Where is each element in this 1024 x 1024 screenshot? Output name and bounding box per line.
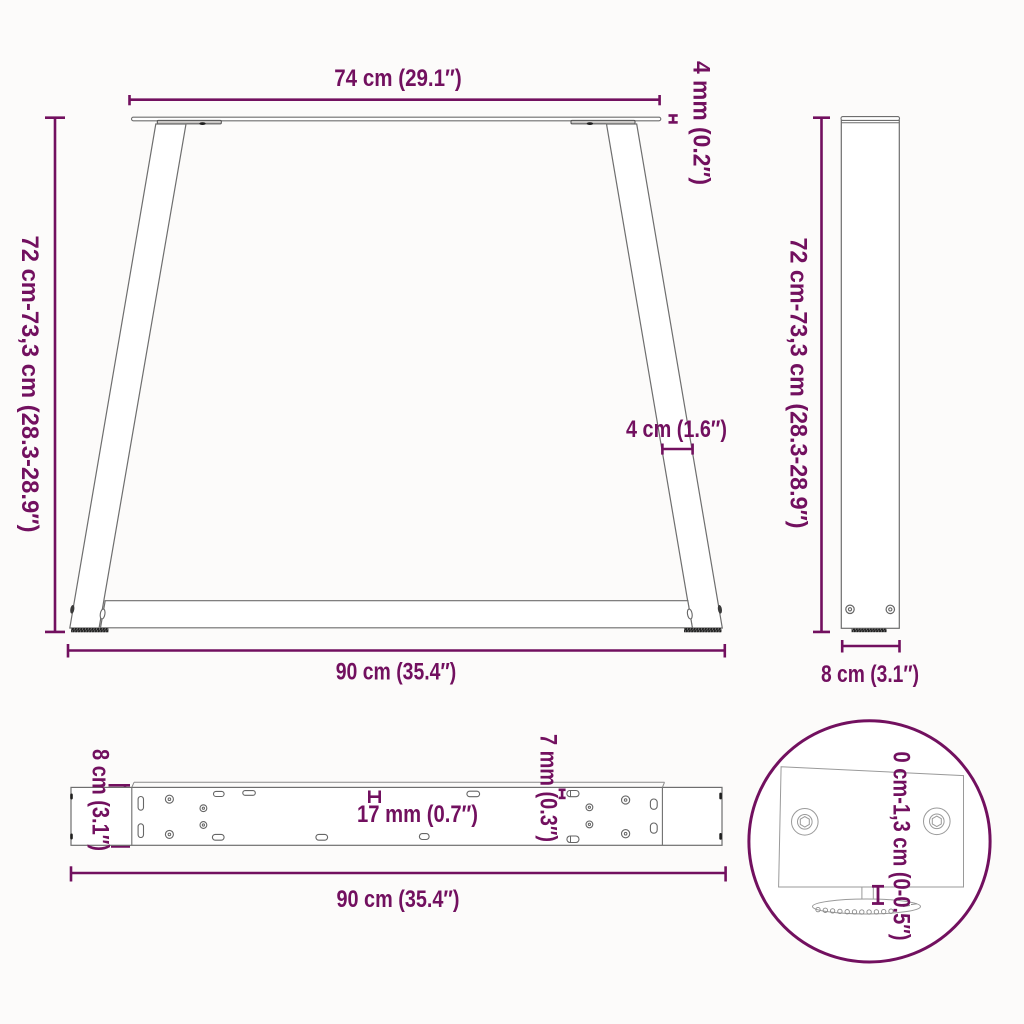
- svg-text:8 cm (3.1″): 8 cm (3.1″): [821, 661, 919, 688]
- svg-text:72 cm-73,3 cm (28.3-28.9″): 72 cm-73,3 cm (28.3-28.9″): [785, 238, 812, 529]
- svg-text:17 mm (0.7″): 17 mm (0.7″): [357, 801, 478, 828]
- svg-text:90 cm (35.4″): 90 cm (35.4″): [337, 886, 460, 913]
- svg-text:7 mm (0.3″): 7 mm (0.3″): [535, 734, 562, 842]
- svg-text:74 cm (29.1″): 74 cm (29.1″): [334, 65, 462, 92]
- svg-text:4 mm (0.2″): 4 mm (0.2″): [688, 61, 715, 185]
- svg-text:90 cm (35.4″): 90 cm (35.4″): [336, 659, 457, 686]
- svg-text:4 cm (1.6″): 4 cm (1.6″): [626, 416, 727, 443]
- svg-text:0 cm-1,3 cm (0-0.5″): 0 cm-1,3 cm (0-0.5″): [888, 752, 915, 941]
- svg-text:72 cm-73,3 cm (28.3-28.9″): 72 cm-73,3 cm (28.3-28.9″): [16, 236, 43, 533]
- svg-text:8 cm (3.1″): 8 cm (3.1″): [87, 749, 114, 851]
